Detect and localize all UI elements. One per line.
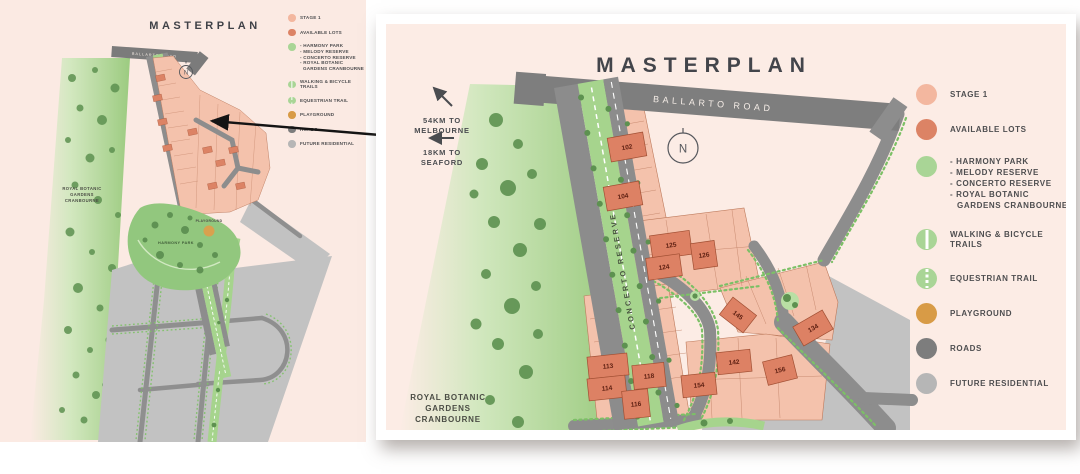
walking-trails-swatch-icon [288, 81, 296, 89]
svg-text:CRANBOURNE: CRANBOURNE [65, 198, 99, 203]
lot-118: 118 [632, 362, 666, 389]
svg-text:114: 114 [601, 385, 613, 393]
distance-seaford: 18KM TO SEAFORD [421, 138, 463, 167]
svg-text:18KM TO: 18KM TO [423, 148, 461, 157]
legend-item-walking-trails: WALKING & BICYCLE TRAILS [916, 229, 1066, 250]
walking-trails-swatch-icon [916, 229, 937, 250]
overview-panel: MASTERPLAN [0, 0, 366, 442]
legend-item-equestrian-trail: EQUESTRIAN TRAIL [288, 97, 366, 105]
svg-text:154: 154 [693, 382, 705, 390]
svg-text:ROYAL BOTANIC: ROYAL BOTANIC [62, 186, 101, 191]
lot-124: 124 [646, 254, 683, 281]
available-lots-swatch-icon [916, 119, 937, 140]
svg-text:ROYAL BOTANIC: ROYAL BOTANIC [410, 393, 486, 402]
svg-text:113: 113 [602, 363, 614, 371]
legend-item-playground: PLAYGROUND [288, 111, 366, 119]
overview-harmony-park-label: HARMONY PARK [158, 241, 194, 245]
future-residential-swatch-icon [916, 373, 937, 394]
overview-stage1-lots [152, 56, 270, 214]
lot-116: 116 [622, 389, 651, 420]
detail-panel: MASTERPLAN [376, 14, 1076, 440]
legend-item-equestrian-trail: EQUESTRIAN TRAIL [916, 268, 1066, 289]
legend-item-roads: ROADS [916, 338, 1066, 359]
parks-swatch-icon [916, 156, 937, 177]
legend-item-roads: ROADS [288, 126, 366, 134]
detail-legend: STAGE 1 AVAILABLE LOTS - HARMONY PARK - … [916, 84, 1066, 408]
detail-compass: N [668, 128, 698, 163]
stage1-swatch-icon [288, 14, 296, 22]
lot-142: 142 [716, 349, 752, 374]
lot-114: 114 [587, 375, 627, 401]
masterplan-composite: MASTERPLAN [0, 0, 1080, 474]
overview-playground-label: PLAYGROUND [196, 219, 223, 223]
svg-text:GARDENS: GARDENS [425, 404, 471, 413]
equestrian-trail-swatch-icon [916, 268, 937, 289]
roads-swatch-icon [288, 126, 296, 134]
roads-swatch-icon [916, 338, 937, 359]
stage1-swatch-icon [916, 84, 937, 105]
future-residential-swatch-icon [288, 140, 296, 148]
legend-item-available-lots: AVAILABLE LOTS [288, 29, 366, 37]
legend-item-available-lots: AVAILABLE LOTS [916, 119, 1066, 140]
overview-harmony-park: PLAYGROUND HARMONY PARK [128, 203, 241, 290]
svg-text:GARDENS: GARDENS [70, 192, 94, 197]
playground-swatch-icon [288, 111, 296, 119]
svg-text:N: N [679, 144, 687, 156]
legend-item-parks: - HARMONY PARK - MELODY RESERVE - CONCER… [916, 156, 1066, 211]
legend-item-future-residential: FUTURE RESIDENTIAL [288, 140, 366, 148]
distance-melbourne: 54KM TO MELBOURNE [414, 88, 470, 135]
equestrian-trail-swatch-icon [288, 97, 296, 105]
svg-text:MELBOURNE: MELBOURNE [414, 126, 470, 135]
legend-item-parks: - HARMONY PARK - MELODY RESERVE - CONCER… [288, 43, 366, 72]
parks-swatch-icon [288, 43, 296, 51]
svg-text:118: 118 [643, 373, 655, 381]
svg-text:116: 116 [630, 401, 642, 409]
available-lots-swatch-icon [288, 29, 296, 37]
svg-text:N: N [184, 71, 188, 77]
lot-154: 154 [681, 372, 717, 397]
detail-card: MASTERPLAN [386, 24, 1066, 430]
svg-text:SEAFORD: SEAFORD [421, 158, 463, 167]
legend-item-stage1: STAGE 1 [288, 14, 366, 22]
lot-126: 126 [690, 240, 717, 269]
legend-item-stage1: STAGE 1 [916, 84, 1066, 105]
overview-legend: STAGE 1 AVAILABLE LOTS - HARMONY PARK - … [288, 14, 366, 155]
svg-text:CRANBOURNE: CRANBOURNE [415, 415, 481, 424]
svg-text:142: 142 [728, 359, 740, 367]
legend-item-playground: PLAYGROUND [916, 303, 1066, 324]
legend-item-walking-trails: WALKING & BICYCLE TRAILS [288, 79, 366, 90]
playground-swatch-icon [916, 303, 937, 324]
overview-playground-area [204, 226, 215, 237]
legend-item-future-residential: FUTURE RESIDENTIAL [916, 373, 1066, 394]
svg-text:54KM TO: 54KM TO [423, 116, 461, 125]
